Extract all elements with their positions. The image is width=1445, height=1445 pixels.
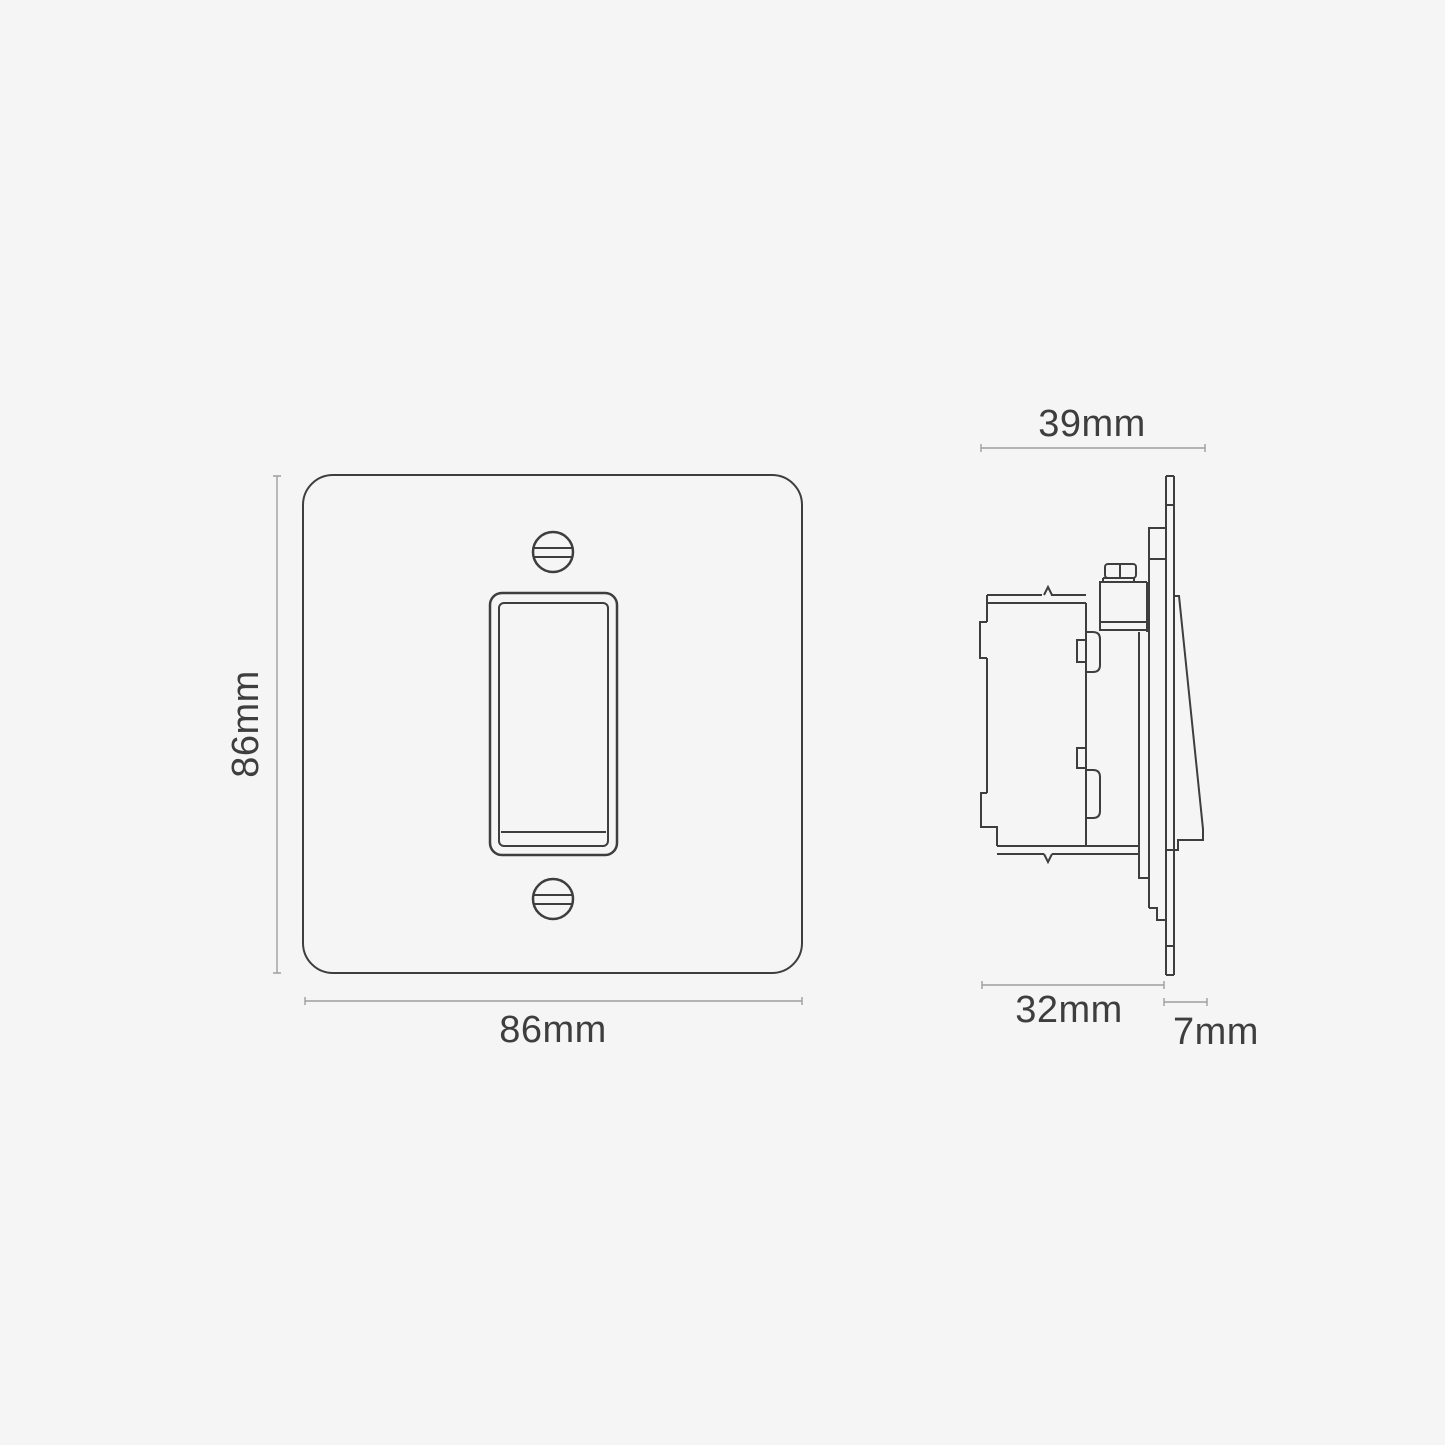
dimension-diagram: 86mm 86mm xyxy=(0,0,1445,1445)
screw-bottom xyxy=(533,879,573,919)
mechanism-depth-dimension-line xyxy=(982,981,1164,989)
rocker-inner-paddle xyxy=(499,603,608,846)
screw-top-head xyxy=(533,532,573,572)
rocker-side xyxy=(1166,596,1203,850)
faceplate-depth-dimension-line xyxy=(1164,998,1207,1006)
side-view: 39mm 32mm 7mm xyxy=(980,403,1259,1053)
mounting-clips xyxy=(1077,632,1100,818)
mounting-box xyxy=(980,587,1139,862)
width-dimension: 86mm xyxy=(305,997,802,1051)
width-dimension-line xyxy=(305,997,802,1005)
mounting-clip-upper-slot xyxy=(1077,640,1086,662)
terminal-screw xyxy=(1103,564,1136,582)
yoke-bracket xyxy=(1100,582,1147,632)
mounting-clip-lower xyxy=(1086,770,1100,818)
front-view: 86mm 86mm xyxy=(225,475,802,1051)
yoke-arm xyxy=(1139,559,1166,920)
height-dimension-line xyxy=(273,476,281,973)
overall-depth-label: 39mm xyxy=(1038,403,1146,445)
mounting-clip-upper xyxy=(1086,632,1100,672)
width-dimension-label: 86mm xyxy=(499,1009,607,1051)
diagram-svg: 86mm 86mm xyxy=(0,0,1445,1445)
height-dimension: 86mm xyxy=(225,476,281,973)
rocker-outer-frame xyxy=(490,593,617,855)
faceplate-side xyxy=(1166,476,1174,975)
screw-bottom-head xyxy=(533,879,573,919)
terminal-screw-base xyxy=(1103,564,1134,582)
module-frame-top xyxy=(1149,528,1166,559)
faceplate-depth-label: 7mm xyxy=(1173,1011,1259,1053)
mounting-clip-lower-slot xyxy=(1077,748,1086,768)
overall-depth-dimension: 39mm xyxy=(981,403,1205,452)
mechanism-depth-dimension: 32mm xyxy=(982,981,1164,1031)
rocker-front xyxy=(490,593,617,855)
faceplate-front xyxy=(303,475,802,973)
screw-bottom-slot xyxy=(534,895,572,904)
height-dimension-label: 86mm xyxy=(225,670,267,778)
screw-top-slot xyxy=(534,548,572,557)
overall-depth-dimension-line xyxy=(981,444,1205,452)
screw-top xyxy=(533,532,573,572)
faceplate-depth-dimension: 7mm xyxy=(1164,998,1259,1053)
mechanism-depth-label: 32mm xyxy=(1015,989,1123,1031)
